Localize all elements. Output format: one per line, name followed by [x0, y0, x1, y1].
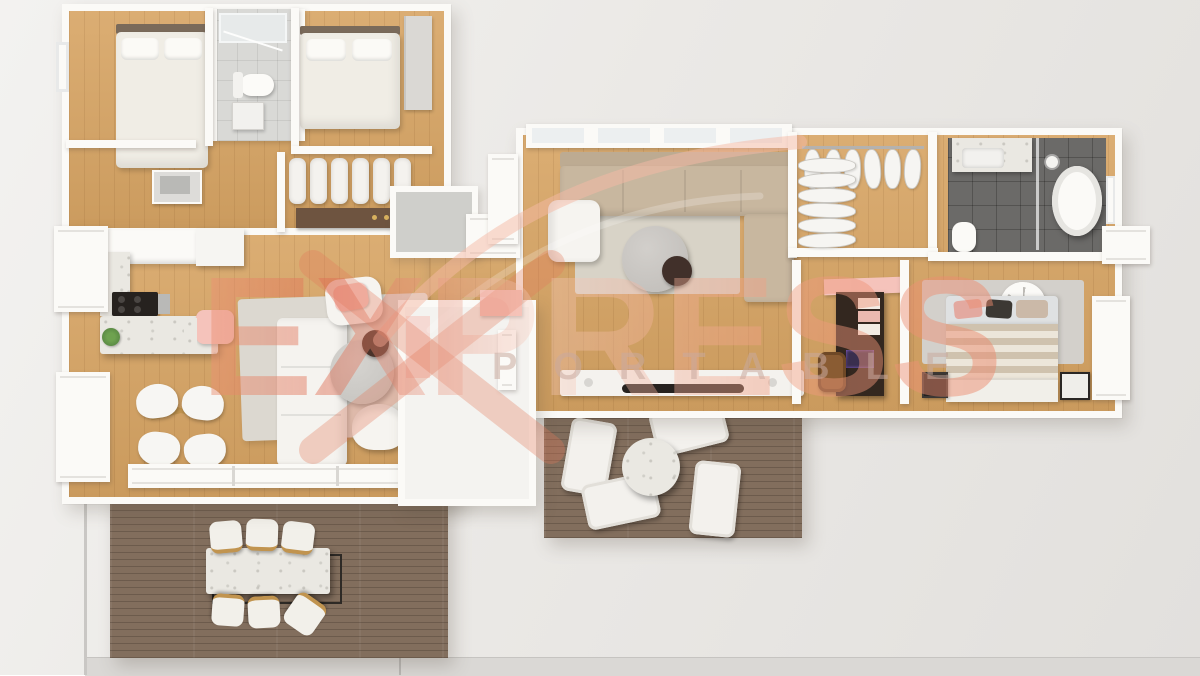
bed-1-pillow-right [164, 38, 202, 60]
bench-cushion [373, 158, 390, 204]
lounge-chair-right [688, 460, 741, 538]
beige-sofa-seam-3 [740, 170, 742, 212]
outdoor-chair-5 [247, 595, 281, 629]
porch-left-lower [56, 372, 110, 482]
wall-living2-closet [788, 132, 797, 258]
ground-seam-left [84, 478, 87, 675]
side-block [184, 318, 197, 346]
deck-round-table [622, 438, 680, 496]
cooktop-burner-2 [134, 296, 141, 303]
outdoor-chair-4 [211, 593, 245, 627]
floorplan-render: EXPRESS PORTABLE [0, 0, 1200, 675]
master-pillow-beige [1016, 300, 1048, 318]
window-pane-3 [664, 128, 716, 143]
ground-seam-bottom [399, 655, 401, 675]
nightstand-right [1060, 372, 1090, 400]
bench-cushion [352, 158, 369, 204]
closet-shelf-knob-1 [372, 215, 377, 220]
outdoor-chair-2 [245, 518, 278, 551]
bed-1-pillow-left [121, 38, 159, 60]
shower-head-2 [1046, 156, 1058, 168]
sliding-door-divider-2 [336, 466, 339, 486]
bedroom-1-window [56, 42, 69, 92]
ground-strip [85, 657, 1200, 676]
cooktop-burner-4 [134, 306, 141, 313]
wall-closet-left [277, 152, 285, 232]
outdoor-chair-1 [209, 520, 244, 555]
bath-1-vanity [232, 102, 264, 130]
toilet-1-tank [233, 72, 243, 98]
bath-2-glass-partition [1036, 138, 1039, 250]
island-plant [102, 328, 120, 346]
beige-sofa-seam-2 [684, 170, 686, 212]
bed-2-pillow-left [306, 39, 346, 61]
bed-2-pillow-right [352, 39, 392, 61]
wall-closet-bath2 [928, 132, 937, 256]
garment [863, 148, 883, 189]
porch-left-upper [54, 226, 108, 312]
garment [884, 149, 901, 189]
window-pane-1 [532, 128, 584, 143]
strip-entry-porch [488, 154, 518, 244]
hanging-clothes-left [798, 158, 862, 246]
right-exterior-closet [1092, 296, 1130, 400]
bedroom-2-wardrobe [404, 16, 432, 110]
sliding-door-divider-1 [232, 466, 235, 486]
bath-2-sink [962, 148, 1004, 168]
entry-steps-right [1102, 226, 1150, 264]
toilet-1 [240, 74, 274, 96]
garment [903, 149, 922, 190]
laundry-machine-lid [160, 176, 190, 194]
wall-bed1-bath [205, 8, 213, 146]
window-pane-4 [730, 128, 782, 143]
beige-sofa-seam-1 [622, 170, 624, 212]
garment [798, 202, 856, 219]
watermark-text-primary: EXPRESS [200, 252, 1003, 422]
wall-bath-bed2 [291, 8, 299, 150]
bath-2-window [1106, 176, 1115, 224]
cooktop-burner-1 [118, 296, 125, 303]
bench-cushion [289, 158, 306, 204]
outdoor-chair-3 [280, 520, 316, 556]
cooktop-burner-3 [118, 306, 125, 313]
shower-glass [219, 13, 287, 43]
bench-cushion [331, 158, 348, 204]
bench-cushion [310, 158, 327, 204]
garment [798, 172, 856, 189]
oven-front [158, 294, 170, 314]
outdoor-dining-table [206, 548, 330, 594]
closet-shelf-knob-2 [384, 215, 389, 220]
freestanding-tub [1052, 166, 1102, 236]
garment [798, 218, 856, 233]
wall-bed1-hall [66, 140, 196, 148]
garment [798, 158, 856, 173]
wall-bed2-hall [291, 146, 432, 154]
window-pane-2 [598, 128, 650, 143]
garment [798, 188, 856, 203]
watermark-text-secondary: PORTABLE [492, 346, 986, 389]
